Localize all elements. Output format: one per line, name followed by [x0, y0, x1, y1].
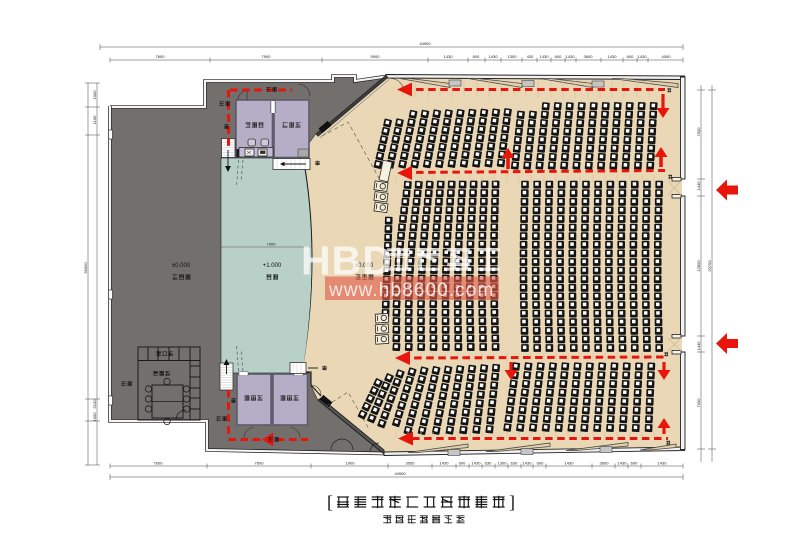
svg-text:1430: 1430 — [489, 54, 499, 59]
svg-text:1900: 1900 — [346, 461, 356, 466]
svg-text:+1.000: +1.000 — [263, 263, 282, 269]
svg-text:630: 630 — [511, 461, 518, 466]
svg-text:7900: 7900 — [696, 398, 701, 408]
svg-text:1300: 1300 — [498, 461, 508, 466]
svg-text:600: 600 — [627, 54, 634, 59]
svg-text:7900: 7900 — [267, 242, 277, 247]
svg-text:7600: 7600 — [255, 461, 265, 466]
svg-text:1430: 1430 — [565, 461, 575, 466]
svg-text:]: ] — [509, 492, 515, 512]
svg-text:1000: 1000 — [92, 412, 97, 422]
svg-text:1430: 1430 — [638, 54, 648, 59]
svg-text:5900: 5900 — [371, 54, 381, 59]
svg-text:600: 600 — [555, 54, 562, 59]
svg-text:1440: 1440 — [696, 181, 701, 191]
svg-text:600: 600 — [459, 461, 466, 466]
svg-text:44900: 44900 — [394, 471, 406, 476]
svg-text:1300: 1300 — [508, 54, 518, 59]
svg-text:600: 600 — [631, 461, 638, 466]
svg-text:±0.000: ±0.000 — [172, 263, 191, 269]
svg-text:1430: 1430 — [566, 54, 576, 59]
svg-text:[: [ — [327, 492, 333, 512]
svg-text:1000: 1000 — [92, 90, 97, 100]
svg-text:1430: 1430 — [540, 54, 550, 59]
svg-text:1100: 1100 — [92, 115, 97, 124]
svg-text:5100: 5100 — [92, 399, 97, 409]
svg-text:630: 630 — [485, 461, 492, 466]
svg-text:3600: 3600 — [600, 461, 610, 466]
svg-text:600: 600 — [473, 54, 480, 59]
svg-text:4050: 4050 — [662, 54, 672, 59]
svg-text:3600: 3600 — [584, 54, 594, 59]
svg-text:7900: 7900 — [696, 127, 701, 137]
svg-text:35900: 35900 — [83, 262, 88, 274]
svg-text:1440: 1440 — [696, 341, 701, 351]
svg-text:1430: 1430 — [608, 54, 618, 59]
svg-text:44900: 44900 — [419, 41, 431, 46]
svg-text:www.hb8600.com: www.hb8600.com — [328, 280, 494, 301]
svg-text:20700: 20700 — [707, 260, 712, 272]
svg-text:3950: 3950 — [406, 461, 416, 466]
svg-text:1430: 1430 — [658, 461, 668, 466]
svg-text:1430: 1430 — [440, 461, 450, 466]
svg-text:1430: 1430 — [618, 461, 628, 466]
svg-text:430: 430 — [527, 54, 534, 59]
svg-text:1430: 1430 — [472, 461, 482, 466]
svg-text:1430: 1430 — [523, 461, 533, 466]
svg-text:7600: 7600 — [154, 461, 164, 466]
svg-text:7600: 7600 — [156, 54, 166, 59]
svg-text:7900: 7900 — [262, 54, 272, 59]
svg-text:600: 600 — [537, 461, 544, 466]
svg-text:12800: 12800 — [696, 260, 701, 272]
svg-text:1430: 1430 — [444, 54, 454, 59]
